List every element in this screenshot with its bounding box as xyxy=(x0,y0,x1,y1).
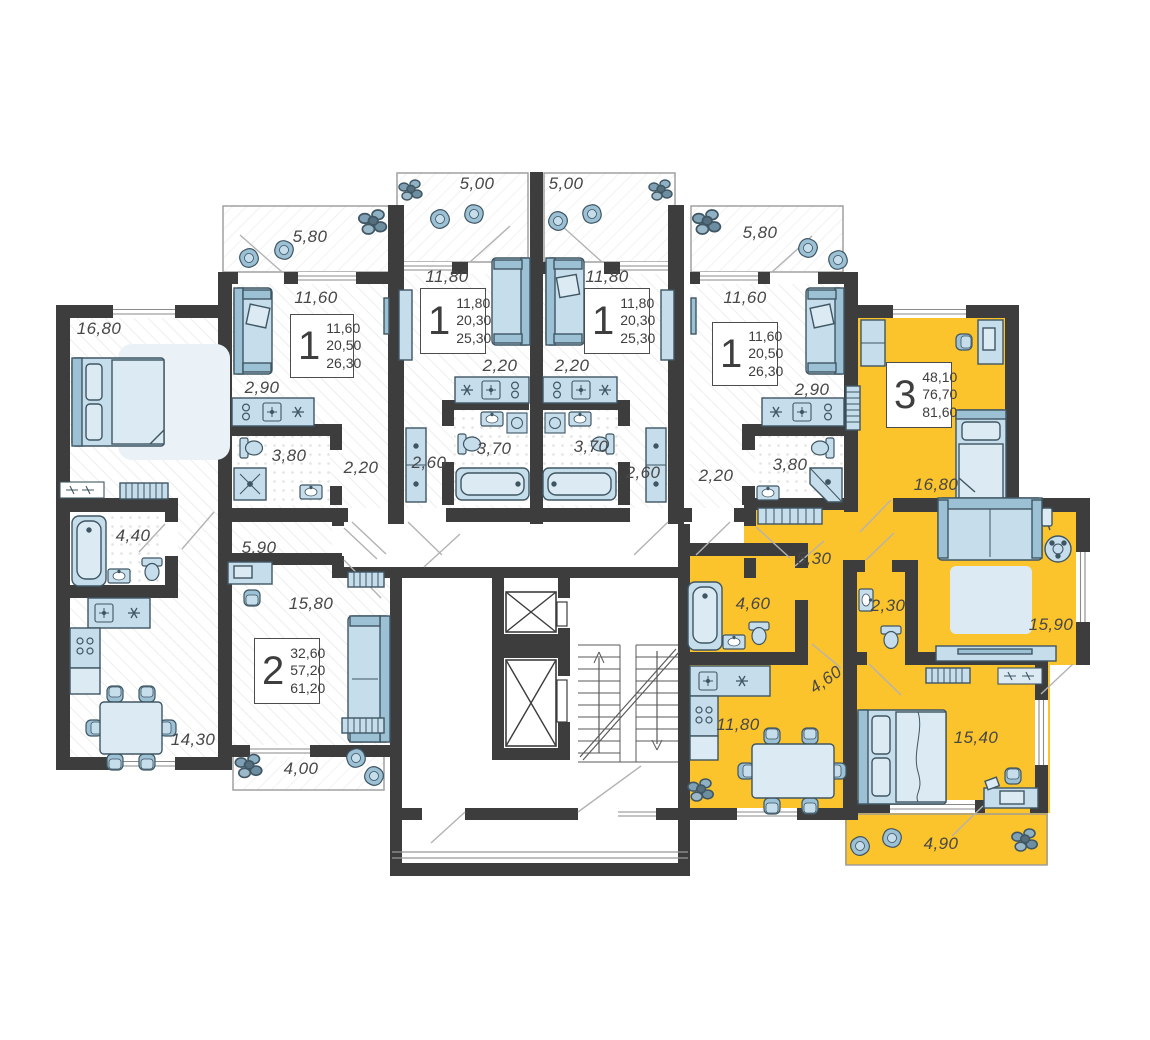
room-area-label: 4,40 xyxy=(116,526,151,546)
room-area-label: 14,30 xyxy=(171,730,216,750)
washer-icon xyxy=(545,413,565,433)
room-area-label: 4,90 xyxy=(924,834,959,854)
area-value: 11,80 xyxy=(620,295,655,313)
area-value: 11,60 xyxy=(326,320,361,338)
kitchen-counter-icon xyxy=(543,377,617,403)
sink-icon xyxy=(569,412,591,426)
area-value: 76,70 xyxy=(922,386,957,404)
area-value: 25,30 xyxy=(456,330,491,348)
plant-icon xyxy=(399,180,422,200)
room-count: 1 xyxy=(720,336,742,372)
area-value: 20,30 xyxy=(456,312,491,330)
bathtub-icon xyxy=(543,468,616,500)
bathtub-icon xyxy=(72,516,106,586)
area-value: 26,30 xyxy=(748,363,783,381)
room-area-label: 5,00 xyxy=(460,174,495,194)
room-area-label: 5,30 xyxy=(797,549,832,569)
room-count: 1 xyxy=(298,328,320,364)
washer-icon xyxy=(507,413,527,433)
area-value: 20,30 xyxy=(620,312,655,330)
room-area-label: 2,30 xyxy=(871,596,906,616)
sofa-icon xyxy=(806,288,844,374)
area-value: 11,60 xyxy=(748,328,783,346)
kitchen-counter-icon xyxy=(232,398,314,426)
room-area-label: 3,80 xyxy=(773,455,808,475)
plant-icon xyxy=(235,755,261,778)
room-area-label: 3,70 xyxy=(574,437,609,457)
tv-stand-icon xyxy=(936,646,1056,661)
apartment-info-card[interactable]: 1 11,80 20,30 25,30 xyxy=(420,288,486,354)
room-area-label: 11,80 xyxy=(425,267,468,287)
room-area-label: 11,80 xyxy=(716,715,759,735)
room-area-label: 15,40 xyxy=(954,728,999,748)
room-area-label: 5,80 xyxy=(743,223,778,243)
area-value: 26,30 xyxy=(326,355,361,373)
room-area-label: 4,60 xyxy=(736,594,771,614)
apartment-info-card[interactable]: 2 32,60 57,20 61,20 xyxy=(254,638,320,704)
sofa-icon xyxy=(546,258,584,345)
kitchen-counter-icon xyxy=(762,398,844,426)
shower-icon xyxy=(234,468,266,500)
room-count: 1 xyxy=(592,303,614,339)
tv-icon xyxy=(691,298,696,334)
room-count: 2 xyxy=(262,653,284,689)
room-area-label: 16,80 xyxy=(77,319,122,339)
room-area-label: 2,20 xyxy=(555,356,590,376)
floor-plan: 5,80 11,60 2,90 3,80 2,20 5,00 11,80 2,2… xyxy=(0,0,1150,1040)
bathtub-icon xyxy=(456,468,529,500)
room-area-label: 2,60 xyxy=(626,463,661,483)
hanger-rail-icon xyxy=(60,482,104,498)
room-area-label: 5,80 xyxy=(293,227,328,247)
sink-icon xyxy=(723,635,745,649)
room-area-label: 15,90 xyxy=(1029,615,1074,635)
plant-icon xyxy=(359,210,387,234)
dresser-icon xyxy=(120,483,168,499)
room-area-label: 11,60 xyxy=(294,288,337,308)
sofa-icon xyxy=(234,288,272,374)
area-value: 11,80 xyxy=(456,295,491,313)
sink-icon xyxy=(300,485,322,499)
tv-icon xyxy=(384,298,389,334)
wardrobe-icon xyxy=(661,290,674,360)
apartment-info-card[interactable]: 1 11,60 20,50 26,30 xyxy=(712,322,778,386)
wardrobe-icon xyxy=(399,290,412,360)
radiator-icon xyxy=(342,718,384,733)
sofa-icon xyxy=(492,258,530,345)
apartment-info-card[interactable]: 1 11,80 20,30 25,30 xyxy=(584,288,650,354)
room-count: 1 xyxy=(428,303,450,339)
radiator-icon xyxy=(846,386,860,430)
area-value: 57,20 xyxy=(290,662,325,680)
area-value: 48,10 xyxy=(922,369,957,387)
plant-icon xyxy=(1012,829,1037,851)
room-area-label: 5,90 xyxy=(242,538,277,558)
apartment-info-card[interactable]: 1 11,60 20,50 26,30 xyxy=(290,314,354,378)
radiator-icon xyxy=(926,668,970,683)
room-area-label: 5,00 xyxy=(549,174,584,194)
room-area-label: 15,80 xyxy=(289,594,334,614)
room-area-label: 3,80 xyxy=(272,446,307,466)
bathtub-icon xyxy=(688,582,722,650)
sofa-icon xyxy=(938,498,1042,560)
kitchen-counter-icon xyxy=(455,377,529,403)
rug-icon xyxy=(950,566,1032,634)
plant-icon xyxy=(693,210,721,234)
area-value: 61,20 xyxy=(290,680,325,698)
wardrobe-icon xyxy=(861,320,885,366)
room-area-label: 2,90 xyxy=(795,380,830,400)
apartment-info-card[interactable]: 3 48,10 76,70 81,60 xyxy=(886,362,952,428)
bench-icon xyxy=(348,572,384,587)
sink-icon xyxy=(481,412,503,426)
room-area-label: 2,20 xyxy=(344,458,379,478)
room-area-label: 11,80 xyxy=(585,267,628,287)
room-area-label: 2,90 xyxy=(245,378,280,398)
plant-icon xyxy=(688,779,713,801)
floor-plan-drawing xyxy=(0,0,1150,1040)
room-area-label: 2,60 xyxy=(412,453,447,473)
room-area-label: 16,80 xyxy=(914,475,959,495)
radiator-icon xyxy=(758,508,822,524)
plant-icon xyxy=(649,180,672,200)
elevators xyxy=(504,590,567,748)
sink-icon xyxy=(108,569,130,583)
sink-icon xyxy=(757,486,779,500)
double-bed-icon xyxy=(858,710,946,804)
area-value: 20,50 xyxy=(326,337,361,355)
room-area-label: 2,20 xyxy=(483,356,518,376)
room-area-label: 11,60 xyxy=(723,288,766,308)
area-value: 81,60 xyxy=(922,404,957,422)
hanger-rail-icon xyxy=(998,668,1042,684)
area-value: 25,30 xyxy=(620,330,655,348)
double-bed-icon xyxy=(72,358,164,446)
area-value: 20,50 xyxy=(748,345,783,363)
bed-icon xyxy=(956,410,1006,506)
area-value: 32,60 xyxy=(290,645,325,663)
room-area-label: 2,20 xyxy=(699,466,734,486)
room-area-label: 3,70 xyxy=(477,439,512,459)
room-count: 3 xyxy=(894,377,916,413)
room-area-label: 4,00 xyxy=(284,759,319,779)
